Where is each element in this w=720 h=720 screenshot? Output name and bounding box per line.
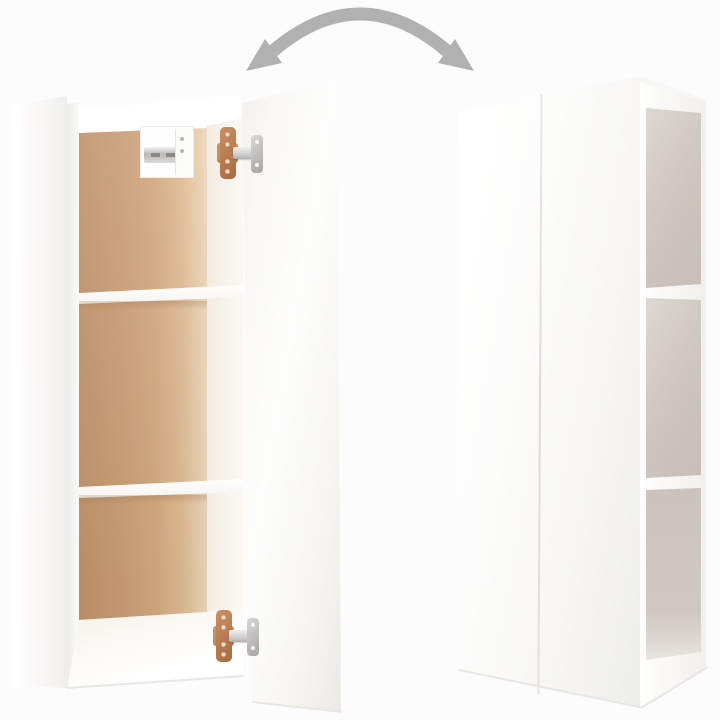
open-cabinet-inner-left-wall xyxy=(67,96,79,691)
hinge-screw-hole xyxy=(225,132,230,137)
hinge-screw-hole xyxy=(221,625,226,630)
hinge-screw-hole xyxy=(255,140,259,144)
hinge-arm xyxy=(233,147,253,159)
hinge-screw-hole xyxy=(225,159,230,164)
bracket-screw-hole xyxy=(180,137,184,141)
arrow-curve xyxy=(273,14,447,51)
open-cabinet-left-side-panel xyxy=(12,96,67,692)
shelf-upper-shadow xyxy=(79,301,207,310)
wood-back-panel xyxy=(79,126,207,620)
open-cabinet-inner-right-wall xyxy=(207,118,243,620)
hinge-top xyxy=(217,127,263,179)
hinge-screw-hole xyxy=(251,623,255,627)
side-compartment-middle xyxy=(646,296,701,480)
hinge-screw-hole xyxy=(221,615,226,620)
hinge-screw-hole xyxy=(225,169,230,174)
product-image xyxy=(0,0,720,720)
closed-cabinet-front xyxy=(458,74,642,710)
hinge-cup-plate xyxy=(247,618,259,656)
hinge-screw-hole xyxy=(255,163,259,167)
hinge-arm xyxy=(229,630,249,642)
side-compartment-bottom xyxy=(646,486,701,664)
hinge-screw-hole xyxy=(221,642,226,647)
wall-mount-bracket xyxy=(140,126,194,178)
bracket-screw-hole xyxy=(180,149,184,153)
bracket-slot xyxy=(151,153,160,157)
bracket-flange xyxy=(175,129,191,175)
hinge-screw-hole xyxy=(251,646,255,650)
hinge-cup-plate xyxy=(251,135,263,173)
hinge-bottom xyxy=(213,610,259,662)
hinge-screw-hole xyxy=(225,142,230,147)
hinge-screw-hole xyxy=(221,652,226,657)
bracket-slot xyxy=(166,153,175,157)
shelf-lower-shadow xyxy=(79,495,207,504)
side-compartment-top xyxy=(646,106,701,292)
